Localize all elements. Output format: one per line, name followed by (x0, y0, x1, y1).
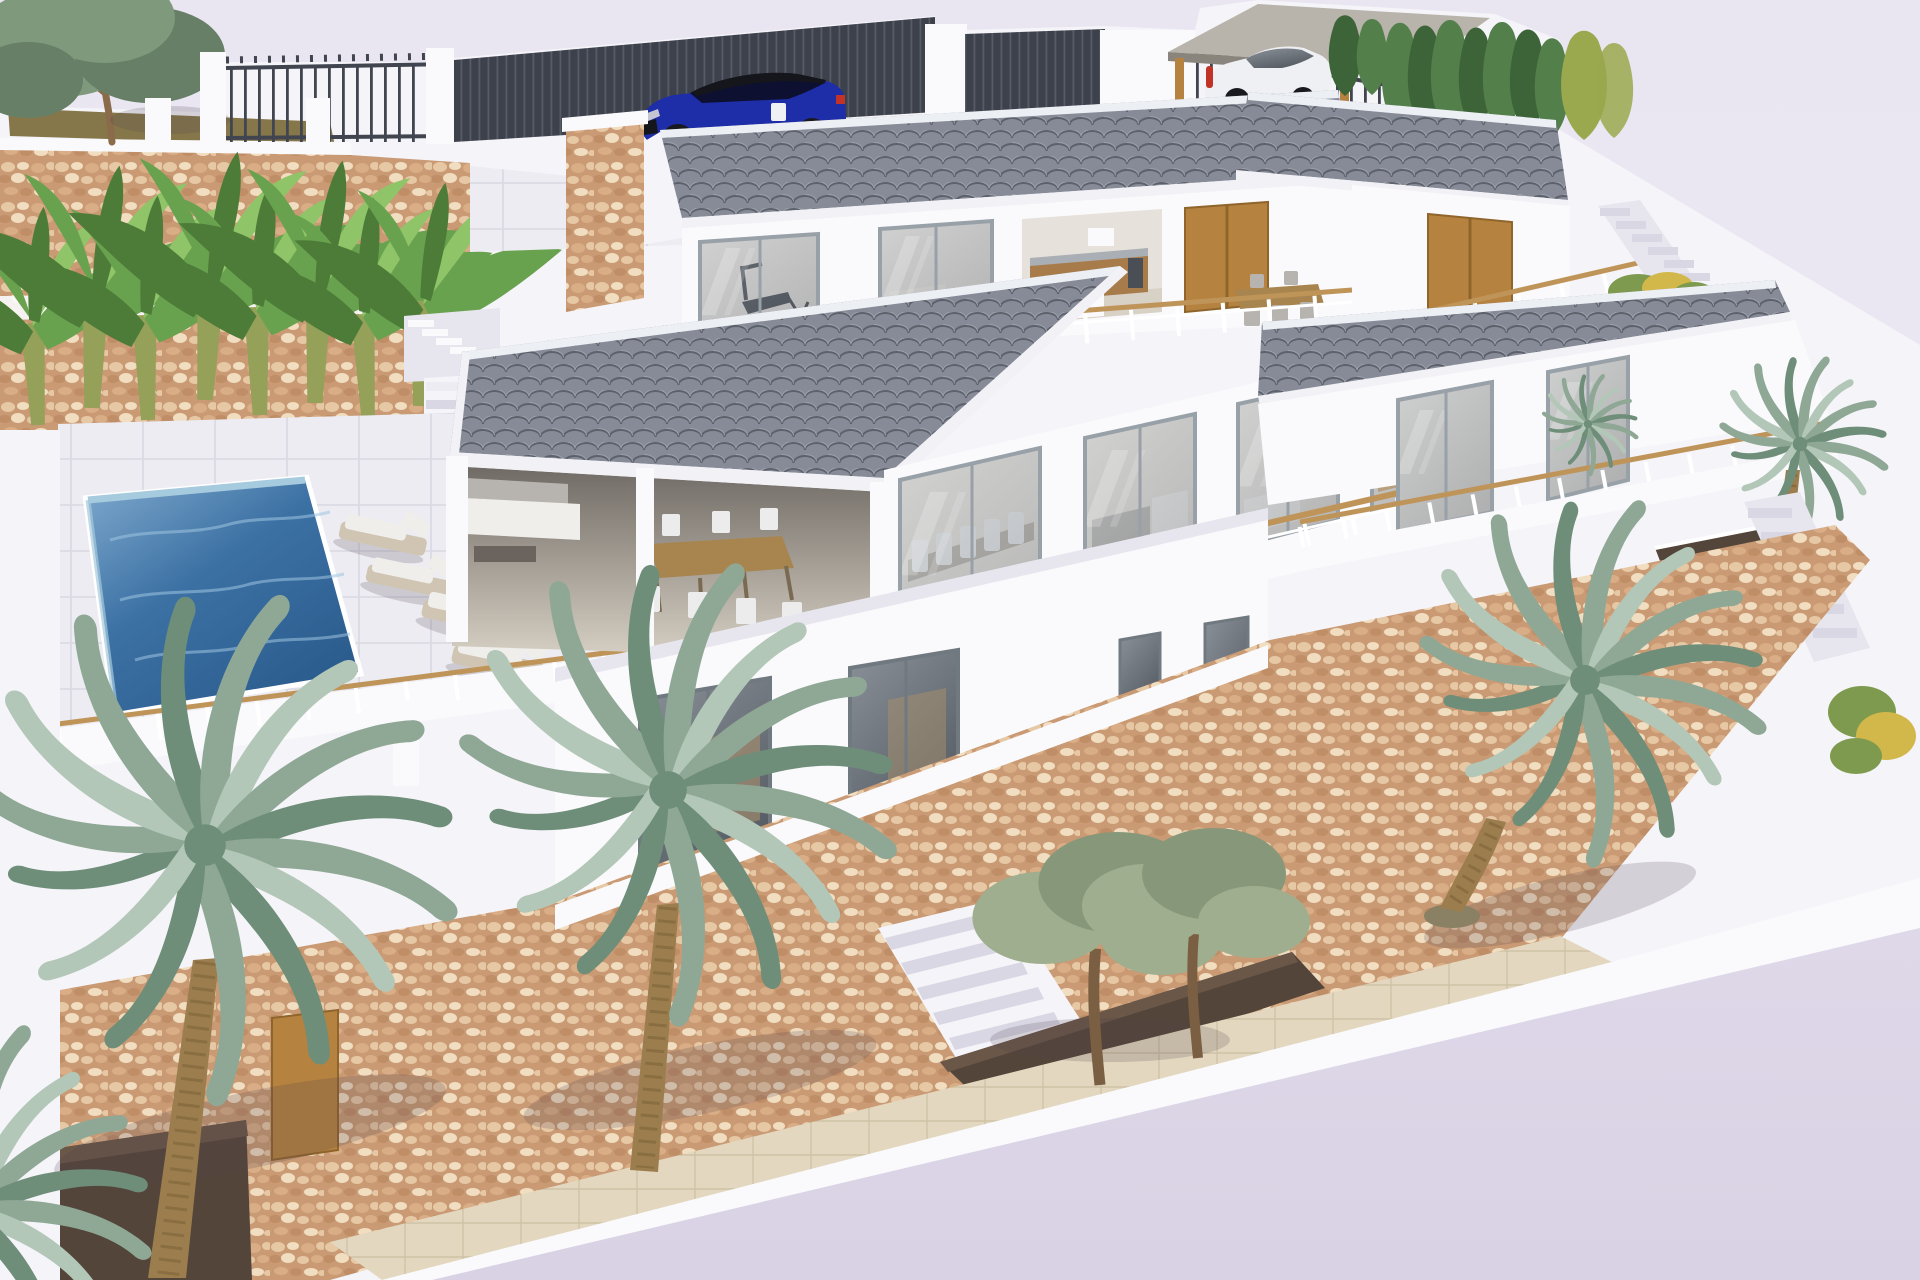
fence-pillar (200, 52, 226, 144)
fence-pillar (145, 98, 171, 146)
suv-plate (771, 103, 786, 121)
porch-column (446, 456, 468, 642)
porch-coffee-table (474, 546, 536, 562)
fence-pillar (306, 98, 330, 144)
suv-taillight (836, 95, 845, 104)
stone-column (562, 110, 648, 312)
architectural-render (0, 0, 1920, 1280)
white-car-taillight (1206, 66, 1213, 88)
right-bedroom-glass-1 (1396, 382, 1492, 532)
render-canvas (0, 0, 1920, 1280)
metal-picket-fence-left (226, 56, 452, 142)
fence-pillar (426, 48, 454, 144)
